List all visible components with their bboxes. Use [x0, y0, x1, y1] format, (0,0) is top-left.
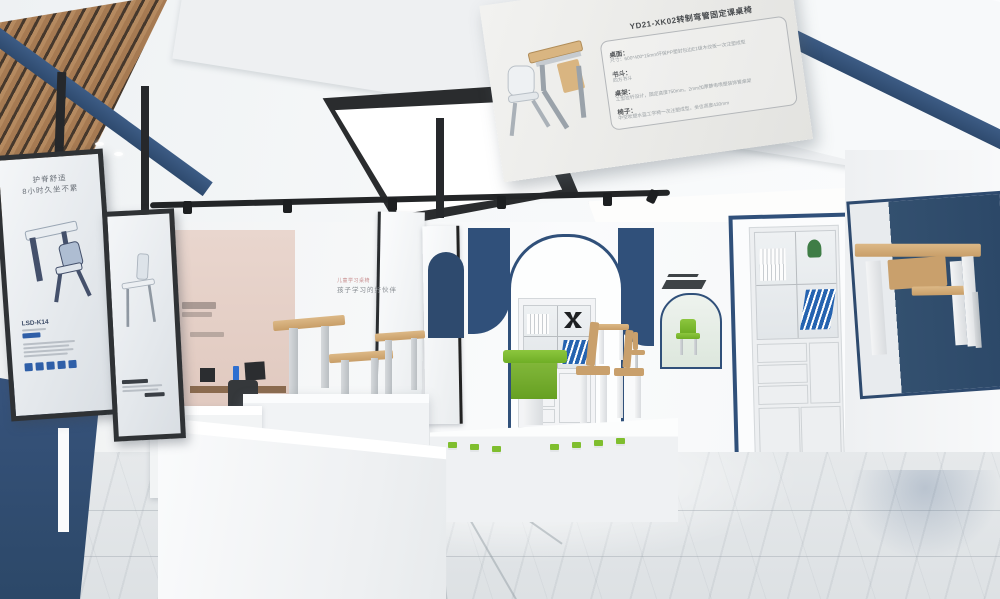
white-ledge [58, 428, 69, 532]
brand-lettering [182, 302, 216, 317]
books [759, 248, 786, 281]
wall-text: 儿童学习桌椅 孩子学习的好伙伴 [337, 277, 397, 294]
blue-framed-niche [728, 212, 861, 487]
showroom-scene: 儿童学习桌椅 孩子学习的好伙伴 [0, 0, 1000, 599]
arch-niche-display [660, 293, 722, 369]
feature-badge-icon [68, 359, 77, 368]
feature-badge-icon [46, 361, 55, 370]
blue-wave-band [468, 228, 510, 334]
wall-text-line2: 孩子学习的好伙伴 [337, 284, 397, 294]
poster-feature-icons [24, 357, 112, 371]
track-spotlight-icon [183, 201, 192, 214]
recessed-desk-niche [846, 191, 1000, 399]
desk-leg [866, 260, 888, 355]
wall-logo-swoosh-icon [667, 274, 699, 277]
green-desk [503, 344, 573, 428]
chair-leg [694, 339, 697, 355]
monitor [200, 368, 215, 382]
recessed-downlight-icon [114, 152, 123, 156]
wall-text-line1: 儿童学习桌椅 [337, 277, 397, 284]
desk-top [855, 244, 981, 257]
poster-desk-image [5, 195, 105, 321]
green-chair-back [680, 319, 696, 333]
feature-badge-icon [35, 362, 44, 371]
cabinet-drawer [757, 343, 807, 363]
track-spotlight-icon [497, 196, 506, 209]
cabinet-door [809, 342, 841, 404]
track-spotlight-icon [603, 193, 612, 206]
poster-lightbox-left: 护脊舒适 8小时久坐不累 LSD-K14 [0, 148, 121, 421]
product-photo-desk-chair [493, 20, 605, 152]
feature-badge-icon [57, 360, 66, 369]
blue-ring-binders [800, 289, 836, 330]
track-spotlight-icon [388, 198, 397, 211]
cabinet-glass-doors [754, 230, 839, 340]
board-spec-box: 桌面： 尺寸：600*400*15mm环保PP塑封包边E1级木纹板一次注塑成型 … [599, 16, 798, 131]
desk-front-panel [887, 256, 947, 290]
blue-ornament [233, 366, 239, 381]
office-cabinet [749, 225, 845, 475]
cabinet-drawer [757, 364, 807, 384]
recessed-downlight-icon [95, 142, 104, 146]
chair-leg [680, 339, 683, 355]
plant [807, 239, 821, 257]
cabinet-drawer [758, 385, 808, 405]
track-spotlight-icon [283, 200, 292, 213]
display-platform-right [430, 418, 678, 522]
floor-reflection [850, 470, 1000, 560]
books [527, 314, 549, 334]
poster-desk-image [112, 228, 173, 371]
wall-logo-text [662, 280, 707, 289]
poster-lightbox-second [102, 208, 186, 441]
poster-badge [22, 332, 40, 338]
student-chair [612, 330, 652, 430]
panel-hanging-post [436, 118, 444, 218]
feature-badge-icon [24, 362, 33, 371]
